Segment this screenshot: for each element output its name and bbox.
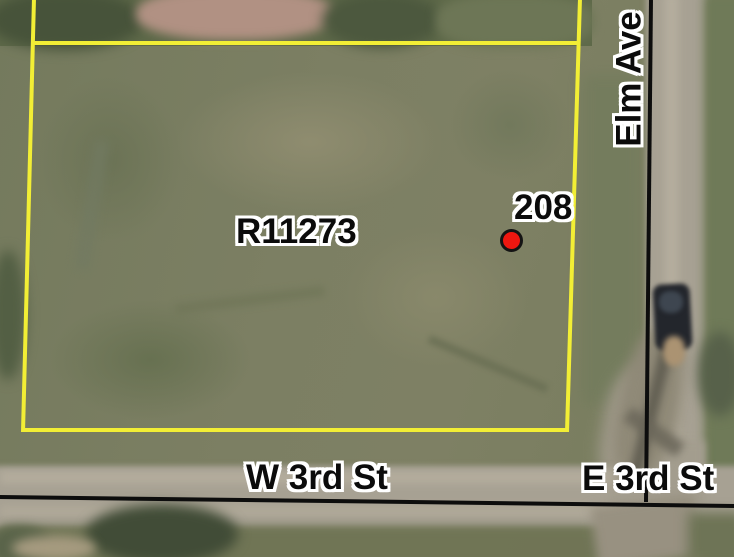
street-label-e-3rd-st: E 3rd St [582, 461, 714, 496]
street-label-elm-ave: Elm Ave [612, 11, 647, 147]
road-centerline-3rd-st [0, 497, 734, 506]
street-label-w-3rd-st: W 3rd St [246, 460, 388, 495]
parcel-boundary-west-line[interactable] [23, 0, 34, 432]
parcel-id-label: R11273 [236, 214, 357, 249]
aerial-parcel-map[interactable]: R11273 208 Elm Ave W 3rd St E 3rd St [0, 0, 734, 557]
red-dot-icon[interactable] [500, 229, 523, 252]
marker-address-label: 208 [514, 190, 572, 225]
